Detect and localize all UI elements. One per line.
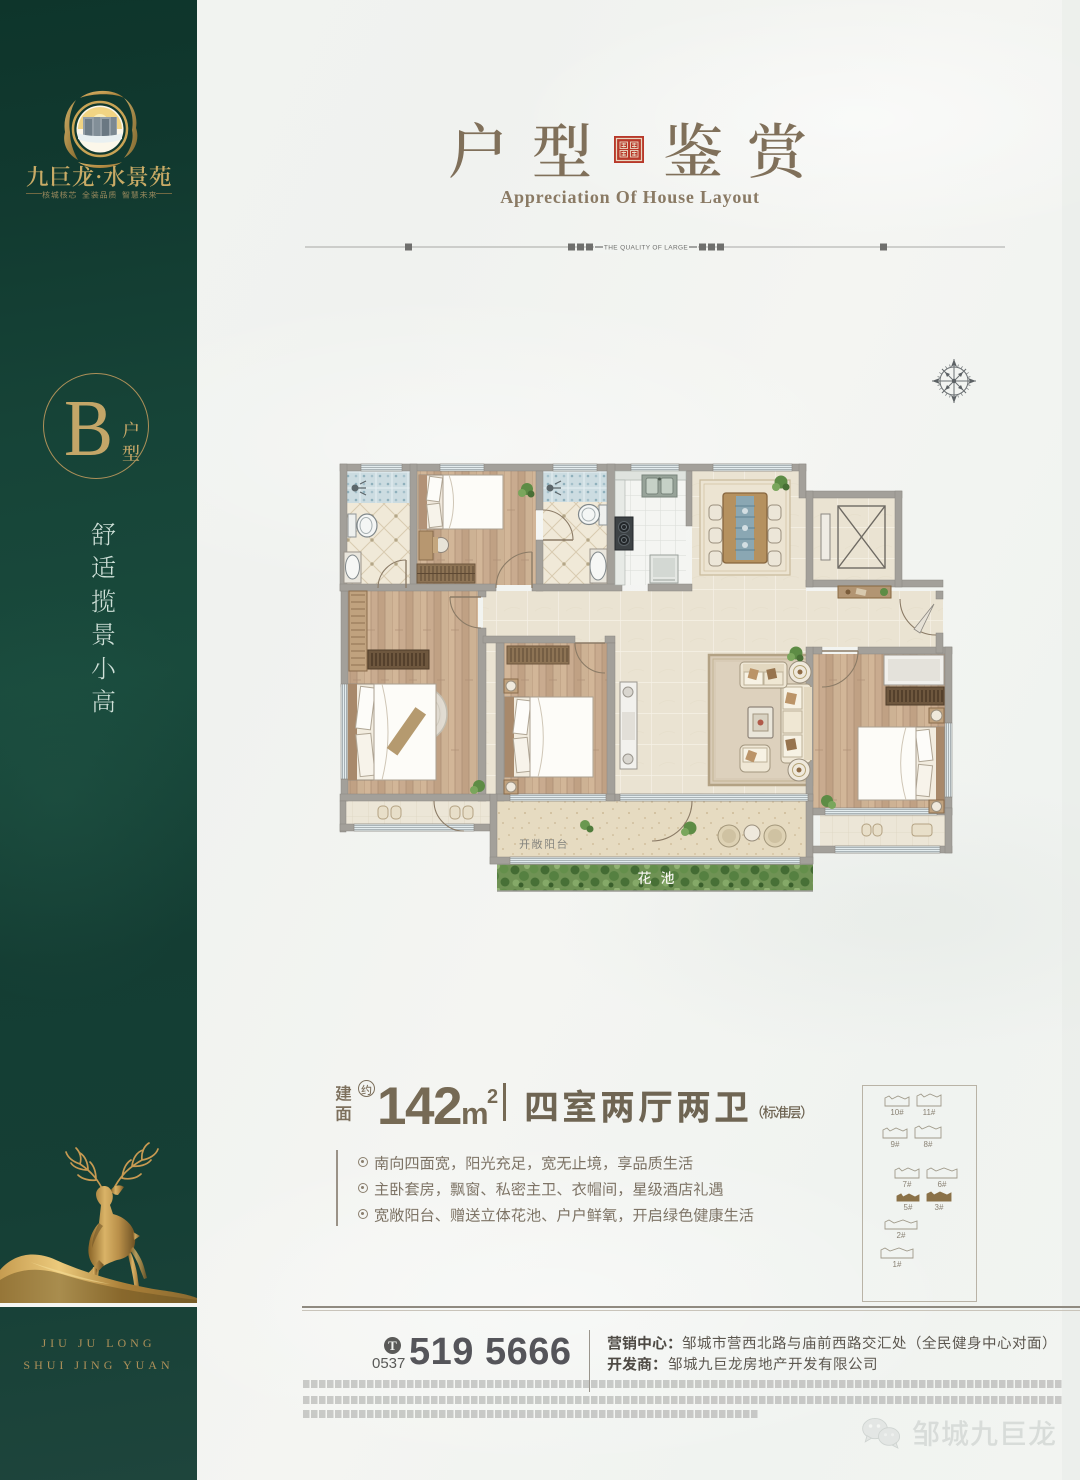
svg-text:7#: 7# bbox=[903, 1180, 912, 1189]
svg-text:2#: 2# bbox=[897, 1231, 906, 1240]
svg-text:6#: 6# bbox=[938, 1180, 947, 1189]
svg-text:5#: 5# bbox=[904, 1203, 913, 1212]
svg-text:8#: 8# bbox=[924, 1140, 933, 1149]
svg-text:11#: 11# bbox=[923, 1108, 936, 1117]
svg-text:1#: 1# bbox=[893, 1260, 902, 1269]
svg-text:3#: 3# bbox=[935, 1203, 944, 1212]
svg-text:9#: 9# bbox=[891, 1140, 900, 1149]
svg-text:10#: 10# bbox=[890, 1108, 904, 1117]
svg-text:THE QUALITY OF LARGE: THE QUALITY OF LARGE bbox=[604, 244, 688, 251]
